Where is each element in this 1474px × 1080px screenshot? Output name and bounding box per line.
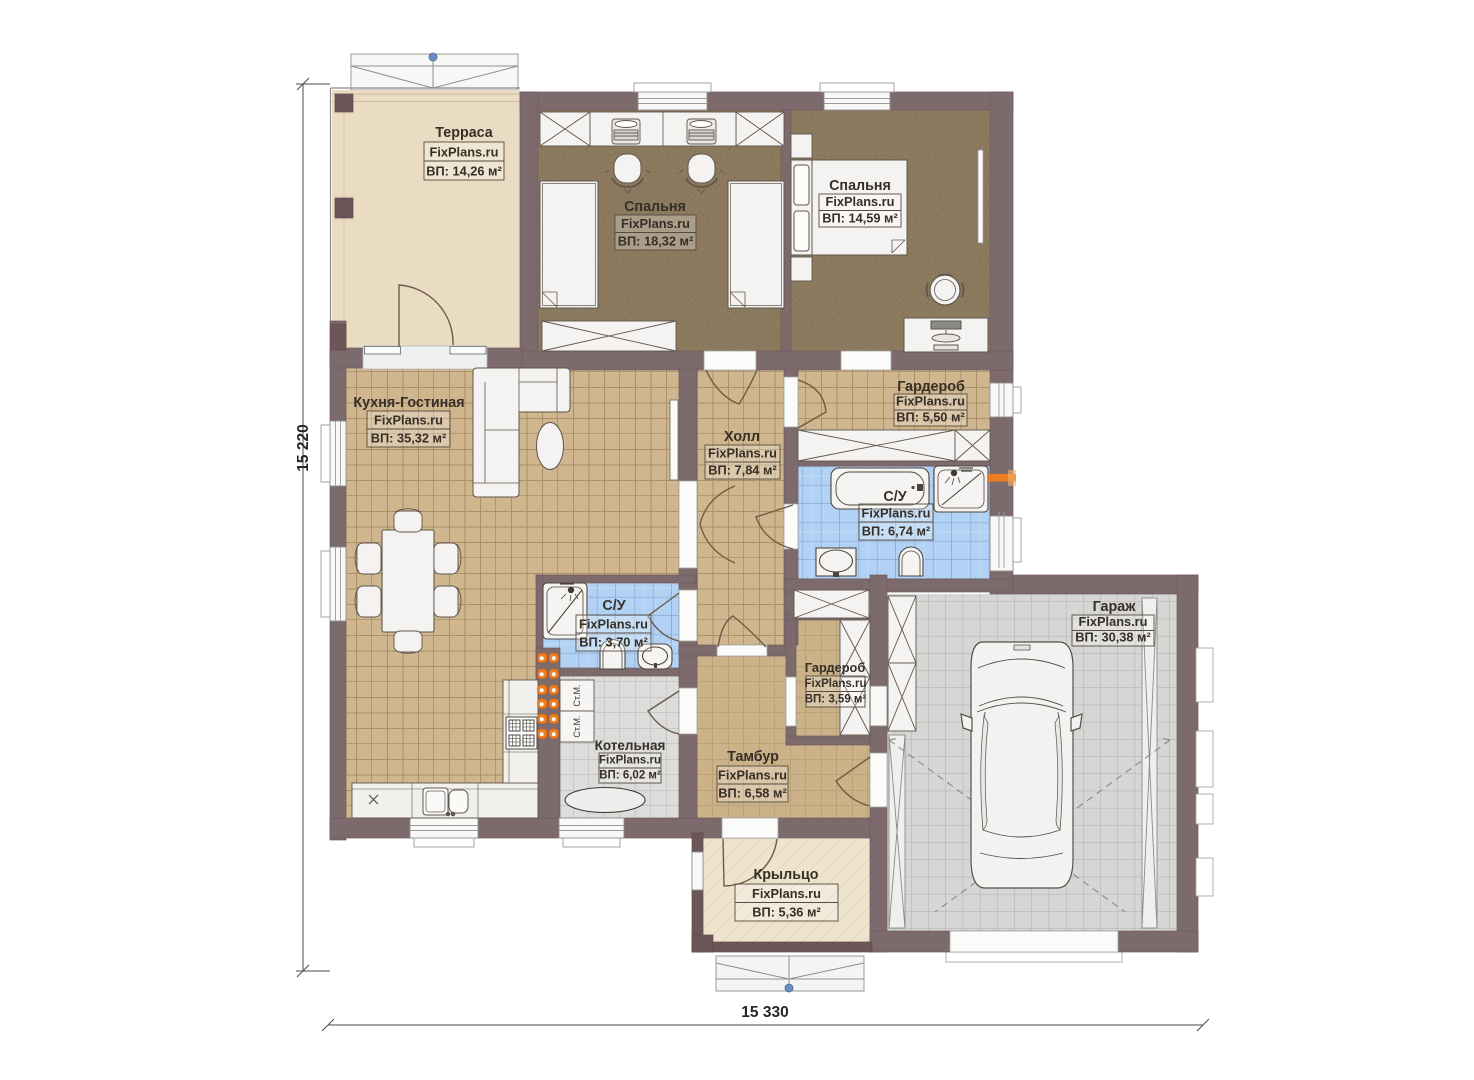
svg-text:ВП: 5,36 м²: ВП: 5,36 м² xyxy=(752,905,820,920)
svg-text:Ст.М.: Ст.М. xyxy=(572,715,582,737)
svg-text:ВП: 14,59 м²: ВП: 14,59 м² xyxy=(822,211,898,226)
svg-text:FixPlans.ru: FixPlans.ru xyxy=(718,768,787,783)
svg-text:FixPlans.ru: FixPlans.ru xyxy=(1079,614,1148,629)
svg-text:FixPlans.ru: FixPlans.ru xyxy=(579,617,648,632)
svg-text:ВП: 35,32 м²: ВП: 35,32 м² xyxy=(371,431,447,446)
svg-text:FixPlans.ru: FixPlans.ru xyxy=(374,413,443,428)
svg-text:ВП: 3,59 м²: ВП: 3,59 м² xyxy=(805,694,867,706)
svg-text:ВП: 5,50 м²: ВП: 5,50 м² xyxy=(896,410,964,425)
svg-text:ВП: 18,32 м²: ВП: 18,32 м² xyxy=(618,234,694,249)
svg-text:Кухня-Гостиная: Кухня-Гостиная xyxy=(353,395,464,411)
svg-text:FixPlans.ru: FixPlans.ru xyxy=(805,678,867,690)
svg-text:FixPlans.ru: FixPlans.ru xyxy=(752,886,821,901)
svg-text:Ст.М.: Ст.М. xyxy=(572,684,582,706)
svg-text:Гараж: Гараж xyxy=(1093,599,1137,615)
svg-text:С/У: С/У xyxy=(883,489,907,505)
svg-text:ВП: 30,38 м²: ВП: 30,38 м² xyxy=(1075,630,1151,645)
svg-text:ВП: 3,70 м²: ВП: 3,70 м² xyxy=(579,635,647,650)
svg-text:Спальня: Спальня xyxy=(829,178,891,194)
svg-text:Котельная: Котельная xyxy=(595,738,666,753)
svg-text:ВП: 7,84 м²: ВП: 7,84 м² xyxy=(708,463,776,478)
svg-text:FixPlans.ru: FixPlans.ru xyxy=(862,506,931,521)
svg-text:FixPlans.ru: FixPlans.ru xyxy=(708,446,777,461)
svg-text:15 330: 15 330 xyxy=(741,1004,788,1021)
svg-text:FixPlans.ru: FixPlans.ru xyxy=(621,216,690,231)
svg-text:FixPlans.ru: FixPlans.ru xyxy=(826,194,895,209)
svg-text:Холл: Холл xyxy=(724,429,760,445)
svg-text:Спальня: Спальня xyxy=(624,199,686,215)
svg-text:Крыльцо: Крыльцо xyxy=(753,867,818,883)
svg-text:С/У: С/У xyxy=(602,598,626,614)
svg-text:ВП: 6,58 м²: ВП: 6,58 м² xyxy=(718,786,786,801)
svg-text:15 220: 15 220 xyxy=(295,424,312,471)
svg-text:Тамбур: Тамбур xyxy=(727,749,779,765)
svg-text:Терраса: Терраса xyxy=(435,125,494,141)
svg-text:FixPlans.ru: FixPlans.ru xyxy=(896,394,965,409)
svg-text:FixPlans.ru: FixPlans.ru xyxy=(599,755,661,767)
svg-text:Гардероб: Гардероб xyxy=(805,660,866,675)
svg-text:FixPlans.ru: FixPlans.ru xyxy=(430,145,499,160)
svg-text:ВП: 14,26 м²: ВП: 14,26 м² xyxy=(426,164,502,179)
svg-text:ВП: 6,02 м²: ВП: 6,02 м² xyxy=(599,770,661,782)
svg-text:ВП: 6,74 м²: ВП: 6,74 м² xyxy=(862,524,930,539)
